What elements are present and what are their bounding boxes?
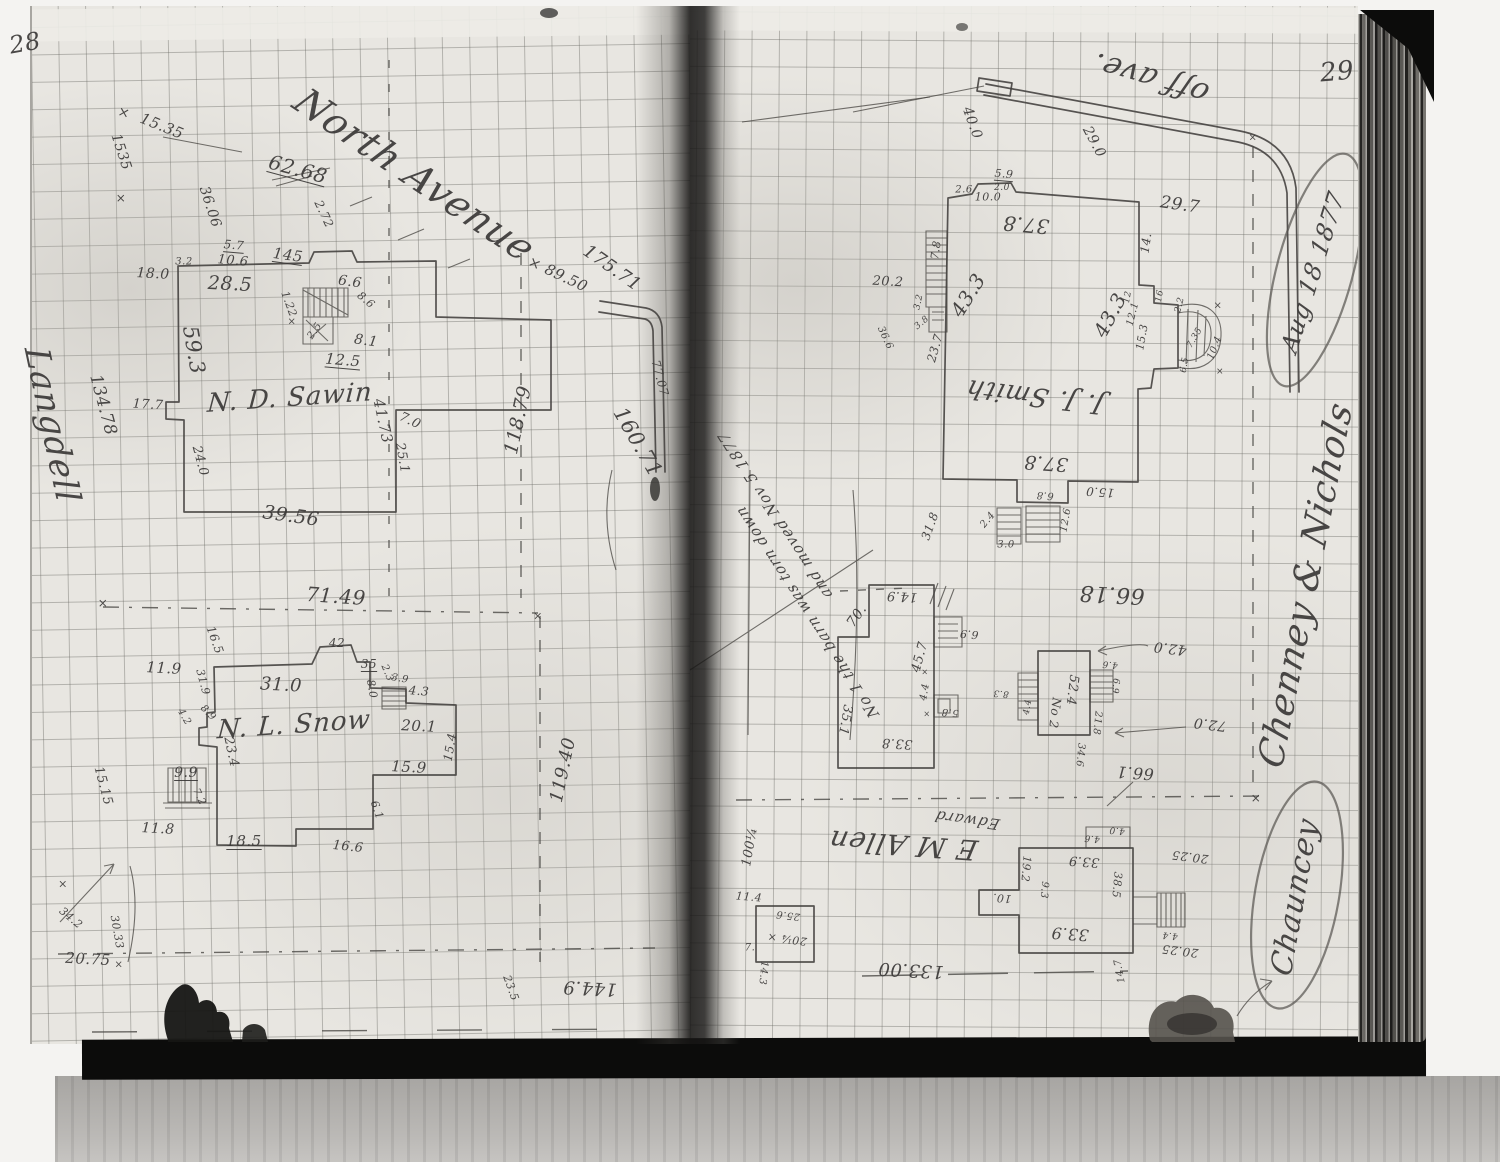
handwritten-label: 12.6: [1058, 507, 1073, 533]
handwritten-label: 6.1: [368, 799, 387, 821]
handwritten-label: 34.6: [1073, 742, 1086, 767]
handwritten-label: 11.4: [735, 889, 763, 904]
handwritten-label: 10.0: [975, 191, 1002, 204]
handwritten-label: ×: [116, 104, 132, 123]
handwritten-label: ×: [115, 960, 124, 971]
handwriting-layer: 28×15.351535×62.68North Avenue36.062.725…: [0, 0, 1500, 1162]
handwritten-label: 7.2: [190, 787, 207, 807]
handwritten-label: 18.0: [136, 265, 170, 283]
handwritten-label: 15.35: [138, 109, 187, 143]
handwritten-label: 31.9: [193, 668, 212, 697]
handwritten-label: 35.1: [835, 703, 855, 736]
handwritten-label: ×: [288, 317, 297, 328]
handwritten-label: 29: [1319, 56, 1356, 89]
handwritten-label: 31.0: [259, 673, 302, 696]
handwritten-label: 134.78: [85, 372, 120, 438]
handwritten-label: 2.4: [978, 510, 998, 530]
handwritten-label: 7.8: [928, 240, 944, 261]
handwritten-label: 4.6: [1084, 832, 1101, 843]
handwritten-label: 5.7: [223, 237, 245, 253]
page-edge-stack: [1358, 14, 1426, 1042]
handwritten-label: 8.9: [198, 703, 218, 723]
handwritten-label: Chauncey: [1264, 814, 1325, 981]
handwritten-label: ×: [98, 596, 109, 610]
handwritten-label: 14.3: [756, 960, 769, 985]
handwritten-label: 16.5: [204, 624, 227, 656]
handwritten-label: 71.49: [305, 582, 366, 610]
handwritten-label: 10.4: [1205, 335, 1224, 362]
handwritten-label: 2.2: [1173, 296, 1187, 314]
handwritten-label: 8.6: [355, 289, 378, 311]
handwritten-label: ×: [533, 610, 543, 623]
handwritten-label: 4.6: [1102, 658, 1119, 669]
handwritten-label: 19.2: [1018, 855, 1033, 883]
handwritten-label: 3.9: [390, 672, 409, 686]
handwritten-label: 14.7: [1112, 958, 1127, 984]
handwritten-label: 2.72: [312, 198, 337, 230]
handwritten-label: 37.8: [1023, 450, 1069, 475]
handwritten-label: ×: [116, 191, 127, 205]
handwritten-label: 37.8: [1002, 211, 1050, 239]
handwritten-label: 42: [329, 636, 345, 650]
handwritten-label: 24.0: [189, 444, 212, 478]
handwritten-label: 30.33: [108, 914, 127, 950]
handwritten-label: 100¼: [739, 826, 761, 867]
handwritten-label: 160.71: [608, 403, 667, 481]
handwritten-label: 4.4: [1162, 929, 1179, 940]
handwritten-label: 34.2: [57, 905, 86, 932]
handwritten-label: Langdell: [15, 346, 88, 504]
handwritten-label: ×: [1251, 791, 1262, 805]
handwritten-label: 7.0: [397, 410, 423, 433]
handwritten-label: 72.0: [1193, 714, 1228, 734]
handwritten-label: 5.8: [941, 706, 959, 718]
handwritten-label: 38.5: [1109, 871, 1124, 899]
handwritten-label: 20.1: [401, 716, 437, 736]
handwritten-label: ×: [58, 878, 68, 891]
handwritten-label: 20.25: [1161, 942, 1199, 960]
handwritten-label: 4.4: [1022, 698, 1035, 715]
handwritten-label: 31.8: [919, 510, 942, 542]
handwritten-label: off ave.: [1085, 45, 1215, 110]
handwritten-label: 62.68: [266, 150, 330, 189]
handwritten-label: 3.2: [912, 293, 925, 311]
handwritten-label: No 2: [1046, 697, 1064, 730]
handwritten-label: 21.8: [1090, 710, 1103, 735]
handwritten-label: ×: [923, 710, 930, 719]
handwritten-label: 35: [361, 657, 377, 671]
handwritten-label: 2.5: [306, 321, 325, 342]
handwritten-label: 6.5: [1179, 356, 1192, 373]
handwritten-label: 36.6: [875, 325, 895, 352]
handwritten-label: ×: [921, 668, 928, 677]
handwritten-label: 25.6: [775, 908, 800, 922]
handwritten-label: 4.4: [918, 682, 932, 701]
handwritten-label: 77.07: [648, 358, 671, 397]
handwritten-label: N. D. Sawin: [206, 377, 373, 419]
handwritten-label: 11.9: [146, 658, 182, 678]
handwritten-label: 8.0: [364, 679, 380, 700]
handwritten-label: ×: [1249, 133, 1258, 144]
handwritten-label: 6.8: [1036, 489, 1054, 501]
handwritten-label: N. L. Snow: [216, 705, 372, 746]
handwritten-label: 4.2: [175, 707, 193, 728]
handwritten-label: 15.0: [1085, 484, 1115, 500]
handwritten-label: E M Allen: [825, 824, 980, 867]
handwritten-label: 119.40: [546, 736, 580, 805]
handwritten-label: 14.9: [886, 588, 918, 605]
handwritten-label: 145: [272, 244, 304, 266]
handwritten-label: 20.2: [872, 274, 904, 291]
handwritten-label: 18.5: [226, 832, 261, 850]
handwritten-label: 9.3: [1038, 881, 1050, 899]
handwritten-label: 20.25: [1171, 848, 1209, 866]
handwritten-label: 66.1: [1116, 762, 1155, 784]
handwritten-label: 15.9: [391, 757, 427, 777]
handwritten-label: 66.18: [1079, 580, 1146, 608]
handwritten-label: 8.3: [993, 687, 1010, 698]
handwritten-label: 10.: [992, 891, 1012, 906]
handwritten-label: 40.0: [959, 105, 985, 142]
handwritten-label: 16.6: [332, 838, 364, 856]
handwritten-label: 41.73: [369, 397, 396, 445]
handwritten-label: 3.0: [997, 540, 1014, 551]
handwritten-label: 11.8: [141, 820, 175, 838]
handwritten-label: J. J. Smith: [962, 373, 1108, 419]
handwritten-label: 29.7: [1159, 192, 1201, 217]
handwritten-label: Chenney & Nichols: [1251, 397, 1361, 774]
handwritten-label: 6.6: [337, 272, 363, 291]
handwritten-label: 9.9: [174, 765, 198, 781]
handwritten-label: ×: [1216, 367, 1224, 377]
handwritten-label: 10.6: [217, 252, 249, 270]
handwritten-label: 1.22: [278, 289, 299, 318]
handwritten-label: 33.8: [881, 735, 913, 752]
handwritten-label: 4.0: [1109, 824, 1126, 835]
handwritten-label: 42.0: [1153, 638, 1188, 658]
handwritten-label: 6.9: [959, 627, 979, 642]
handwritten-label: 3.8: [913, 314, 932, 332]
handwritten-label: 4.3: [408, 683, 430, 699]
handwritten-label: 7.: [745, 943, 756, 954]
handwritten-label: 20¼ ×: [766, 930, 807, 948]
handwritten-label: 144.9: [562, 976, 617, 1000]
handwritten-label: ×: [1214, 301, 1223, 312]
handwritten-label: 1535: [108, 132, 135, 173]
handwritten-label: 70.: [844, 602, 871, 631]
handwritten-label: 15.4: [441, 732, 460, 763]
handwritten-label: 3.2: [175, 257, 192, 268]
handwritten-label: 20.75: [65, 949, 111, 969]
handwritten-label: 23.5: [500, 973, 521, 1002]
handwritten-label: 23.7: [924, 332, 945, 363]
handwritten-label: 33.9: [1051, 923, 1090, 945]
handwritten-label: 36.06: [196, 184, 224, 229]
handwritten-label: 5.9: [994, 167, 1014, 182]
handwritten-label: 175.71: [579, 240, 645, 295]
handwritten-label: 28.5: [207, 272, 252, 296]
handwritten-label: Aug 18 1877: [1276, 187, 1350, 358]
handwritten-label: 133.00: [878, 958, 945, 982]
handwritten-label: 52.4: [1063, 674, 1082, 707]
handwritten-label: 15.15: [91, 765, 116, 807]
handwritten-label: 59.3: [178, 324, 210, 376]
handwritten-label: 29.0: [1079, 124, 1109, 161]
handwritten-label: 16: [1154, 289, 1166, 303]
handwritten-label: 28: [7, 26, 43, 59]
handwritten-label: 15.3: [1133, 323, 1150, 351]
handwritten-label: 8.1: [353, 331, 379, 350]
handwritten-label: 33.9: [1068, 852, 1100, 869]
handwritten-label: 43.3: [945, 269, 990, 321]
handwritten-label: 12.5: [325, 349, 362, 370]
handwritten-label: 39.56: [261, 501, 320, 531]
notebook-scan: 28×15.351535×62.68North Avenue36.062.725…: [0, 0, 1500, 1162]
handwritten-label: 118.79: [500, 384, 536, 457]
handwritten-label: 7.35: [1185, 326, 1205, 350]
handwritten-label: 17.7: [132, 397, 164, 414]
handwritten-label: 25.1: [392, 441, 412, 474]
handwritten-label: 6.9: [1109, 678, 1120, 695]
handwritten-label: Edward: [932, 807, 1001, 834]
handwritten-label: 14.: [1138, 232, 1155, 254]
handwritten-label: 2.6: [955, 185, 972, 196]
